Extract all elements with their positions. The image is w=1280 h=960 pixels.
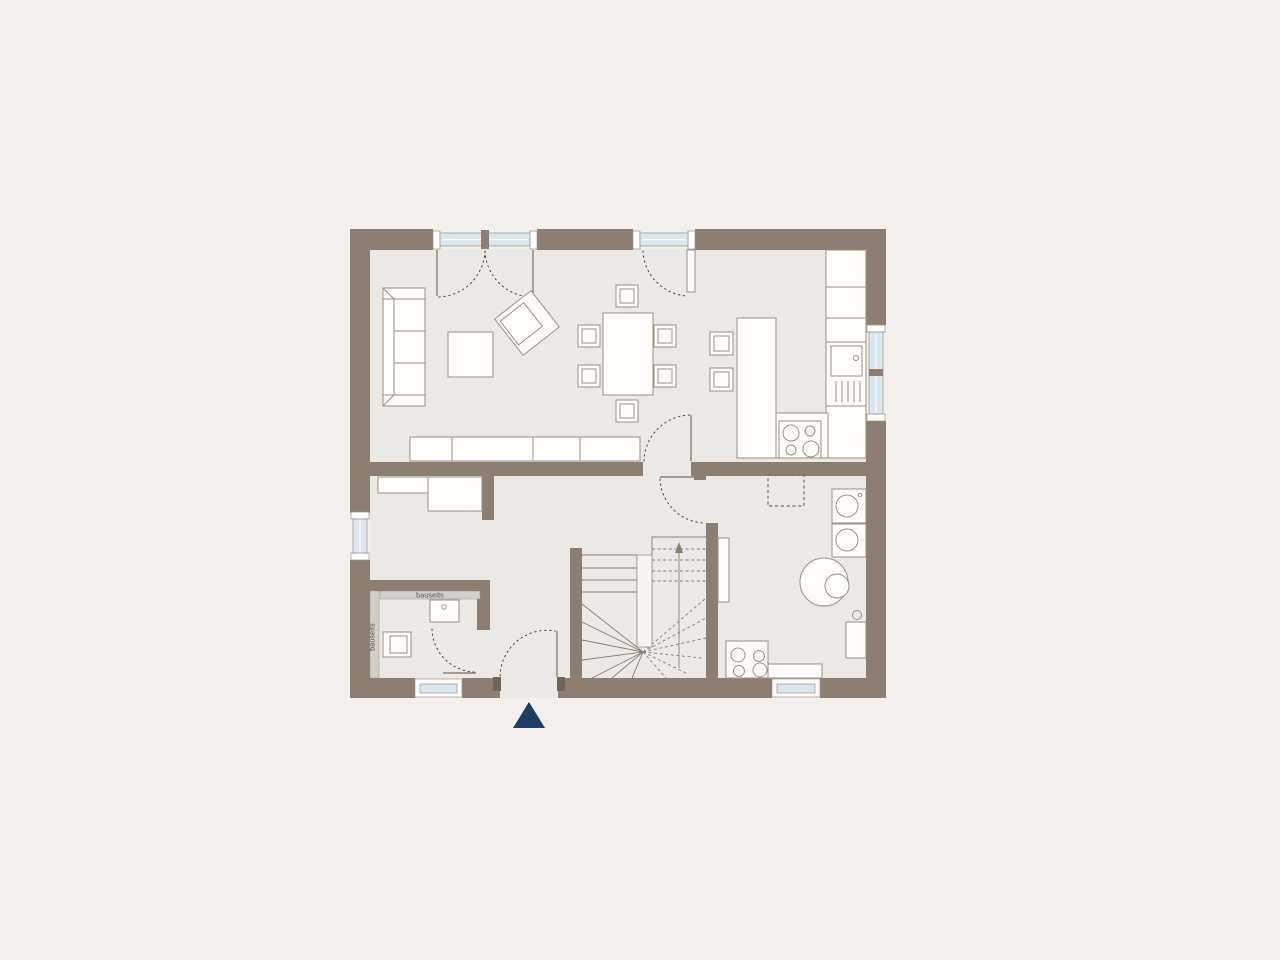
bauseits-label-left: bauseits [370,623,377,651]
dining-chair [616,400,638,422]
mullion [481,230,489,249]
washing-machine [832,489,866,523]
floor-plan-canvas: bauseits bauseits [0,0,1280,960]
bar-stool [710,332,733,355]
door-leaf [687,250,695,292]
dining-chair [578,365,600,387]
dining-table [603,313,653,395]
cooktop [779,421,821,458]
utility-window [772,679,820,697]
door-post [557,677,565,691]
heating-unit [726,641,768,678]
mullion [869,369,883,376]
entrance-marker-triangle [513,702,545,728]
utility-cabinet [718,538,729,602]
bar-stool [710,368,733,391]
dining-chair [616,285,638,307]
dining-chair [578,325,600,347]
dryer [832,524,866,557]
toilet [383,632,411,657]
hall-window [351,512,369,560]
utility-shelf [768,664,822,678]
kitchen-window [867,325,885,421]
kitchen-peninsula [737,318,776,458]
dining-chair [654,325,676,347]
sofa [383,288,425,406]
sideboard [410,437,640,461]
bathroom-window [415,679,462,697]
stair-well [637,555,652,647]
floor-plan: bauseits bauseits [0,0,1280,960]
boiler-tank [800,558,849,606]
door-post [493,677,501,691]
coffee-table [448,332,493,377]
dining-chair [654,365,676,387]
washbasin [430,600,459,622]
bauseits-label-top: bauseits [416,593,444,600]
